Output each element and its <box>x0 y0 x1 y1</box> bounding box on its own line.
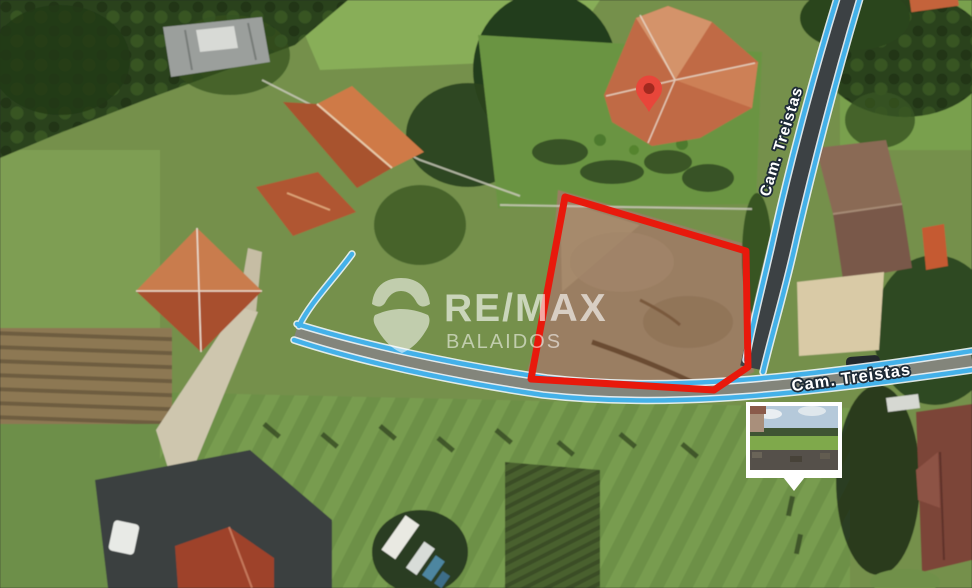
satellite-map-image: Cam. Treistas Cam. Treistas RE/MAX BALAI… <box>0 0 972 588</box>
thumbnail-photo <box>750 406 838 470</box>
street-view-thumbnail[interactable] <box>746 402 842 491</box>
watermark-office-text: BALAIDOS <box>446 331 562 353</box>
watermark-brand-text: RE/MAX <box>444 287 608 330</box>
